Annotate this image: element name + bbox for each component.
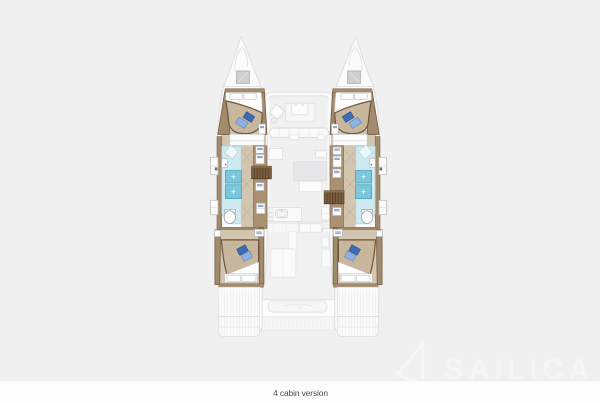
svg-text:4 cabin version: 4 cabin version	[273, 388, 328, 398]
